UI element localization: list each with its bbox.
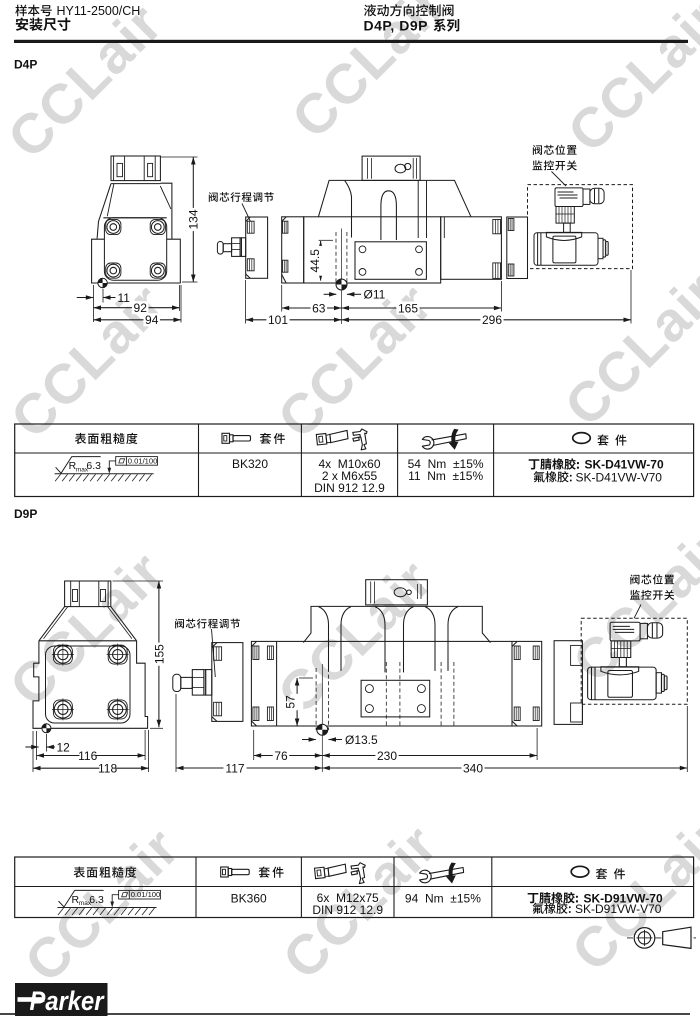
svg-text:101: 101 bbox=[268, 313, 288, 327]
svg-text:230: 230 bbox=[377, 749, 397, 763]
svg-text:76: 76 bbox=[274, 749, 288, 763]
svg-text:11 Nm ±15%: 11 Nm ±15% bbox=[408, 469, 483, 483]
svg-text:Ø11: Ø11 bbox=[364, 288, 386, 302]
svg-text:117: 117 bbox=[225, 761, 244, 775]
svg-text:116: 116 bbox=[78, 749, 97, 763]
svg-text:HY11-2500/CH: HY11-2500/CH bbox=[57, 4, 141, 18]
svg-text:DIN 912 12.9: DIN 912 12.9 bbox=[312, 903, 383, 917]
svg-text:D4P, D9P: D4P, D9P bbox=[364, 17, 428, 33]
svg-text:BK320: BK320 bbox=[232, 457, 268, 471]
svg-text:94 Nm ±15%: 94 Nm ±15% bbox=[405, 892, 481, 906]
svg-text:134: 134 bbox=[187, 209, 201, 229]
svg-text:Ø13.5: Ø13.5 bbox=[345, 733, 378, 747]
svg-text:63: 63 bbox=[312, 301, 326, 315]
svg-text:11: 11 bbox=[118, 291, 131, 305]
svg-text:SK-D91VW-V70: SK-D91VW-V70 bbox=[575, 902, 662, 916]
svg-text:296: 296 bbox=[482, 313, 502, 327]
svg-text:118: 118 bbox=[98, 762, 117, 776]
svg-text:DIN 912 12.9: DIN 912 12.9 bbox=[314, 481, 385, 495]
svg-text:44.5: 44.5 bbox=[308, 249, 322, 273]
svg-text:165: 165 bbox=[398, 301, 418, 315]
svg-text:D4P: D4P bbox=[14, 58, 37, 72]
svg-text:155: 155 bbox=[152, 644, 166, 664]
svg-text:D9P: D9P bbox=[14, 507, 37, 521]
svg-text:340: 340 bbox=[463, 761, 483, 775]
svg-text:Parker: Parker bbox=[30, 986, 106, 1016]
svg-text:12: 12 bbox=[57, 740, 71, 754]
svg-text:94: 94 bbox=[145, 313, 159, 327]
svg-text:SK-D41VW-V70: SK-D41VW-V70 bbox=[576, 470, 663, 484]
svg-text:57: 57 bbox=[283, 695, 297, 709]
svg-text:BK360: BK360 bbox=[231, 892, 267, 906]
